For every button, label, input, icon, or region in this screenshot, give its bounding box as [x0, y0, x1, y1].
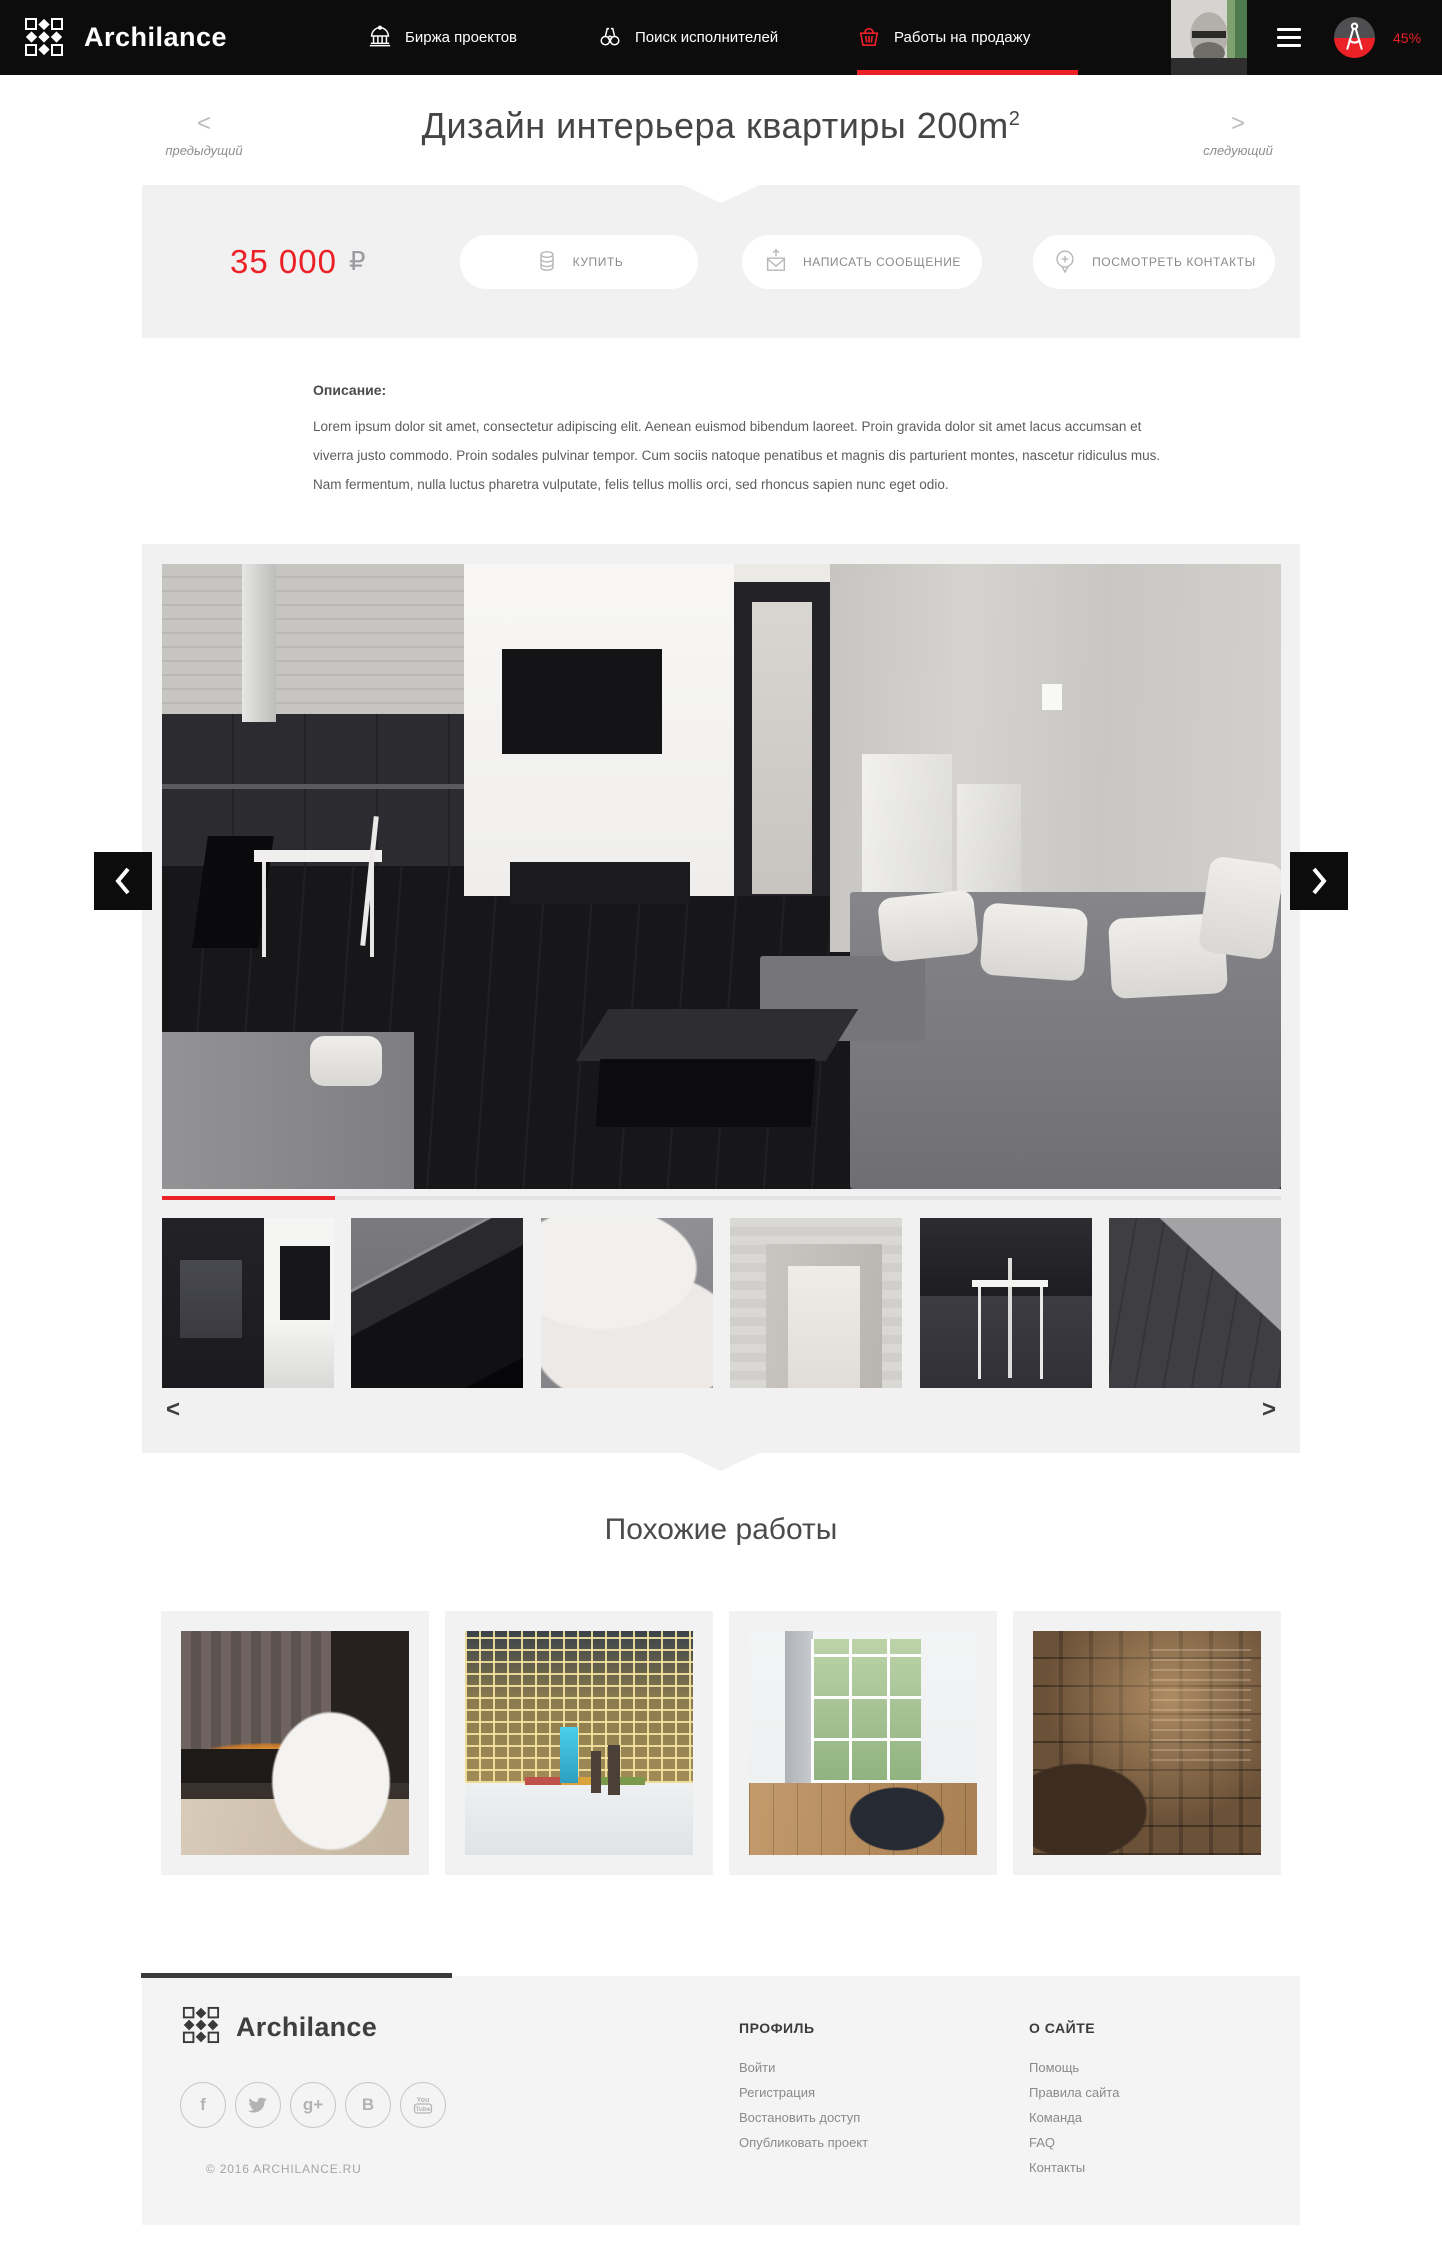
main-photo[interactable]: [162, 564, 1281, 1189]
footer-link-register[interactable]: Регистрация: [739, 2085, 868, 2100]
footer-link-restore-access[interactable]: Востановить доступ: [739, 2110, 868, 2125]
envelope-icon: [763, 247, 789, 277]
navbar: Archilance Биржа проектов Поиск исполнит…: [0, 0, 1442, 75]
price-amount: 35 000: [230, 243, 337, 281]
google-plus-icon[interactable]: g+: [290, 2082, 336, 2128]
vk-icon[interactable]: B: [345, 2082, 391, 2128]
thumbnail-dining-table[interactable]: [920, 1218, 1092, 1388]
similar-work-atrium[interactable]: [445, 1611, 713, 1875]
chevron-right-icon: [1307, 861, 1331, 901]
footer-link-faq[interactable]: FAQ: [1029, 2135, 1119, 2150]
profile-progress-badge[interactable]: [1334, 17, 1375, 58]
title-section: Дизайн интерьера квартиры 200m2 < предыд…: [142, 75, 1300, 185]
chevron-right-icon: >: [1190, 113, 1286, 135]
similar-works-heading: Похожие работы: [142, 1453, 1300, 1547]
gallery-prev-button[interactable]: [94, 852, 152, 910]
view-contacts-label: ПОСМОТРЕТЬ КОНТАКТЫ: [1092, 255, 1256, 269]
archilance-logo-icon[interactable]: [24, 17, 64, 57]
view-contacts-button[interactable]: ПОСМОТРЕТЬ КОНТАКТЫ: [1033, 235, 1275, 289]
footer-about-column: О САЙТЕ Помощь Правила сайта Команда FAQ…: [1029, 2020, 1119, 2185]
similar-work-fireplace[interactable]: [161, 1611, 429, 1875]
nav-item-works-for-sale[interactable]: Работы на продажу: [857, 0, 1030, 75]
thumbnail-doorway[interactable]: [730, 1218, 902, 1388]
facebook-icon[interactable]: f: [180, 2082, 226, 2128]
footer-link-site-rules[interactable]: Правила сайта: [1029, 2085, 1119, 2100]
footer-link-team[interactable]: Команда: [1029, 2110, 1119, 2125]
footer-link-publish-project[interactable]: Опубликовать проект: [739, 2135, 868, 2150]
about-column-heading: О САЙТЕ: [1029, 2020, 1119, 2036]
twitter-icon[interactable]: [235, 2082, 281, 2128]
prev-work-button[interactable]: < предыдущий: [156, 113, 252, 158]
next-work-label: следующий: [1190, 143, 1286, 158]
footer-logo[interactable]: Archilance: [182, 2006, 377, 2049]
footer-accent-line: [141, 1973, 452, 1978]
hamburger-menu-icon[interactable]: [1277, 28, 1301, 47]
youtube-icon[interactable]: You Tube: [400, 2082, 446, 2128]
nav-item-label: Биржа проектов: [405, 29, 517, 46]
nav-item-project-exchange[interactable]: Биржа проектов: [368, 0, 517, 75]
ruble-sign: ₽: [349, 246, 366, 277]
footer-profile-column: ПРОФИЛЬ Войти Регистрация Востановить до…: [739, 2020, 868, 2160]
buy-button[interactable]: КУПИТЬ: [460, 235, 698, 289]
nav-item-label: Поиск исполнителей: [635, 29, 778, 46]
nav-item-label: Работы на продажу: [894, 29, 1030, 46]
similar-works-list: [161, 1611, 1281, 1875]
archilance-logo-icon: [182, 2006, 220, 2049]
footer-link-login[interactable]: Войти: [739, 2060, 868, 2075]
gallery-section: < >: [142, 544, 1300, 1453]
social-links: f g+ B You Tube: [180, 2082, 446, 2128]
content-card: Дизайн интерьера квартиры 200m2 < предыд…: [142, 75, 1300, 2225]
price-section: 35 000 ₽ КУПИТЬ НАПИС: [142, 185, 1300, 338]
thumbnail-sofa-pillows[interactable]: [541, 1218, 713, 1388]
coins-icon: [535, 248, 559, 277]
next-work-button[interactable]: > следующий: [1190, 113, 1286, 158]
prev-work-label: предыдущий: [156, 143, 252, 158]
thumbnail-strip: [162, 1218, 1281, 1388]
footer-link-help[interactable]: Помощь: [1029, 2060, 1119, 2075]
buy-button-label: КУПИТЬ: [573, 255, 624, 269]
active-nav-underline: [857, 70, 1078, 75]
similar-work-living-room[interactable]: [729, 1611, 997, 1875]
page-title: Дизайн интерьера квартиры 200m2: [142, 75, 1300, 147]
bank-column-icon: [368, 24, 392, 52]
send-message-label: НАПИСАТЬ СООБЩЕНИЕ: [803, 255, 961, 269]
description-section: Описание: Lorem ipsum dolor sit amet, co…: [142, 338, 1300, 544]
thumbnails-prev-button[interactable]: <: [166, 1396, 180, 1424]
description-text: Lorem ipsum dolor sit amet, consectetur …: [313, 412, 1179, 499]
drafting-compass-icon: [1334, 17, 1375, 58]
user-avatar[interactable]: [1171, 0, 1247, 75]
svg-text:Tube: Tube: [415, 2106, 430, 2113]
footer-link-contacts[interactable]: Контакты: [1029, 2160, 1119, 2175]
thumbnail-kitchen-cabinet[interactable]: [162, 1218, 334, 1388]
copyright: © 2016 ARCHILANCE.RU: [206, 2162, 362, 2176]
svg-text:You: You: [417, 2097, 430, 2104]
similar-work-library[interactable]: [1013, 1611, 1281, 1875]
profile-column-heading: ПРОФИЛЬ: [739, 2020, 868, 2036]
footer-brand-title: Archilance: [236, 2012, 377, 2043]
shopping-basket-icon: [857, 24, 881, 52]
gallery-next-button[interactable]: [1290, 852, 1348, 910]
thumbnail-coffee-table[interactable]: [351, 1218, 523, 1388]
profile-percent-label: 45%: [1393, 0, 1421, 75]
location-pin-plus-icon: [1052, 247, 1078, 277]
send-message-button[interactable]: НАПИСАТЬ СООБЩЕНИЕ: [742, 235, 982, 289]
nav-item-find-performers[interactable]: Поиск исполнителей: [598, 0, 778, 75]
gallery-progress-indicator: [162, 1196, 335, 1200]
thumbnails-next-button[interactable]: >: [1262, 1396, 1276, 1424]
brand-title[interactable]: Archilance: [84, 0, 227, 75]
similar-works-section: Похожие работы: [142, 1453, 1300, 1976]
thumbnail-floor-sofa[interactable]: [1109, 1218, 1281, 1388]
chevron-left-icon: [111, 861, 135, 901]
binoculars-icon: [598, 24, 622, 52]
price: 35 000 ₽: [230, 185, 365, 338]
gallery-progress-track: [162, 1196, 1281, 1200]
description-label: Описание:: [142, 338, 1300, 398]
footer: Archilance f g+ B You Tube: [142, 1976, 1300, 2225]
chevron-left-icon: <: [156, 113, 252, 135]
